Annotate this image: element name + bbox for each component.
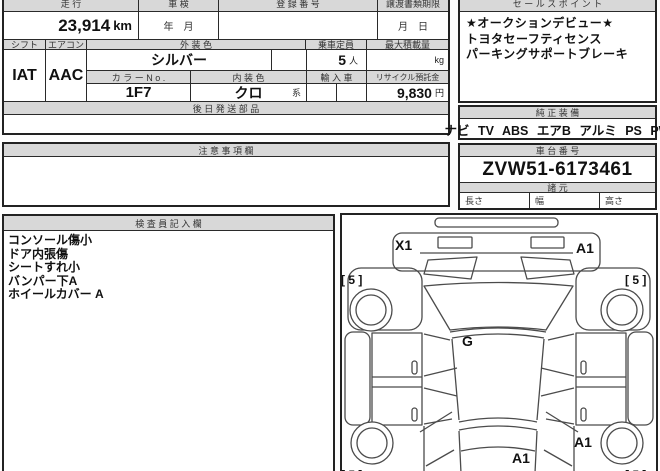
headlight-left <box>424 257 477 279</box>
car-diagram-box: X1 A1 [ 5 ] [ 5 ] G A1 A1 [ 5 ] [ 5 ] <box>340 213 658 471</box>
later-parts-header: 後 日 発 送 部 品 <box>4 102 448 115</box>
exterior-color-value: シルバー <box>87 50 272 71</box>
mileage-number: 23,914 <box>58 16 110 36</box>
rocker-panel-right <box>628 332 653 425</box>
caution-box: 注 意 事 項 欄 <box>2 142 450 207</box>
registration-value <box>219 12 378 40</box>
recycle-value: 9,830 円 <box>367 84 448 102</box>
damage-mark-front-bumper-left: X1 <box>395 237 412 253</box>
aircon-header: エアコン <box>46 40 87 50</box>
sales-point-line: ★オークションデビュー★ <box>466 16 649 32</box>
inspector-header: 検 査 員 記 入 欄 <box>4 216 333 231</box>
aircon-value: AAC <box>46 50 87 102</box>
max-load-unit: kg <box>434 55 444 65</box>
capacity-header: 乗車定員 <box>306 40 367 50</box>
sales-point-line: パーキングサポートブレーキ <box>466 47 649 63</box>
windshield <box>452 339 544 420</box>
chassis-header: 車 台 番 号 <box>460 145 655 157</box>
license-plate-area <box>438 237 472 248</box>
inspector-note: コンソール傷小 <box>8 234 329 248</box>
interior-color-suffix: 系 <box>292 86 301 99</box>
inspector-note: バンパー下A <box>8 275 329 289</box>
shift-header: シフト <box>4 40 46 50</box>
chassis-specs-box: 車 台 番 号 ZVW51-6173461 諸 元 長さ 幅 高さ <box>458 143 657 210</box>
length-label: 長さ <box>460 193 530 208</box>
chassis-value: ZVW51-6173461 <box>460 157 655 182</box>
import-header: 輸 入 車 <box>307 71 367 84</box>
inspector-box: 検 査 員 記 入 欄 コンソール傷小 ドア内張傷 シートすれ小 バンパー下A … <box>2 214 335 471</box>
vehicle-info-table: 走 行 車 検 登 録 番 号 譲渡書類期限 23,914 km 年 月 月 日… <box>2 0 450 135</box>
inspection-value: 年 月 <box>139 12 219 40</box>
damage-mark-windshield: G <box>462 333 473 349</box>
headlight-right <box>521 257 574 279</box>
shift-value: IAT <box>4 50 46 102</box>
inspector-note: ホイールカバー A <box>8 288 329 302</box>
mileage-unit: km <box>113 18 132 33</box>
caution-value <box>4 157 448 203</box>
front-bumper-strip <box>435 218 558 227</box>
interior-color-name: クロ <box>235 84 263 102</box>
later-parts-value <box>4 115 448 133</box>
max-load-value: kg <box>367 50 448 71</box>
recycle-number: 9,830 <box>397 85 432 101</box>
car-damage-diagram: X1 A1 [ 5 ] [ 5 ] G A1 A1 [ 5 ] [ 5 ] <box>342 215 656 471</box>
color-no-header: カ ラ ー N o . <box>87 71 191 84</box>
interior-color-value: クロ 系 <box>191 84 307 102</box>
door-handle-left-front <box>412 361 417 374</box>
capacity-unit: 人 <box>349 54 358 67</box>
tire-grade-front-right: [ 5 ] <box>625 273 646 287</box>
transfer-deadline-header: 譲渡書類期限 <box>378 0 448 12</box>
recycle-unit: 円 <box>435 86 444 99</box>
import-cell-2 <box>337 84 367 102</box>
mileage-header: 走 行 <box>4 0 139 12</box>
height-label: 高さ <box>600 193 655 208</box>
caution-header: 注 意 事 項 欄 <box>4 144 448 157</box>
exterior-color-extra-cell <box>272 50 307 71</box>
front-bumper <box>393 233 600 271</box>
mileage-value: 23,914 km <box>4 12 139 40</box>
damage-mark-rear-right: A1 <box>574 434 592 450</box>
sales-points-header: セ ー ル ス ポ イ ン ト <box>460 0 655 12</box>
doors-left <box>372 333 422 425</box>
max-load-header: 最大積載量 <box>367 40 448 50</box>
width-label: 幅 <box>530 193 600 208</box>
rocker-panel-left <box>345 332 370 425</box>
tire-grade-front-left: [ 5 ] <box>342 273 362 287</box>
damage-mark-rear-center: A1 <box>512 450 530 466</box>
front-sensor-area <box>531 237 564 248</box>
import-cell-1 <box>307 84 337 102</box>
sales-points-box: セ ー ル ス ポ イ ン ト ★オークションデビュー★ トヨタセーフティセンス… <box>458 0 657 103</box>
registration-header: 登 録 番 号 <box>219 0 378 12</box>
equipment-value: ナビ TV ABS エアB アルミ PS PW <box>460 119 655 140</box>
door-handle-right-front <box>581 361 586 374</box>
auction-sheet: 走 行 車 検 登 録 番 号 譲渡書類期限 23,914 km 年 月 月 日… <box>0 0 660 471</box>
equipment-box: 純 正 装 備 ナビ TV ABS エアB アルミ PS PW <box>458 105 657 140</box>
hood <box>424 283 573 331</box>
inspection-header: 車 検 <box>139 0 219 12</box>
color-no-value: 1F7 <box>87 84 191 102</box>
sales-points-list: ★オークションデビュー★ トヨタセーフティセンス パーキングサポートブレーキ <box>460 12 655 63</box>
capacity-number: 5 <box>338 52 346 68</box>
inspector-notes: コンソール傷小 ドア内張傷 シートすれ小 バンパー下A ホイールカバー A <box>4 231 333 305</box>
interior-color-header: 内 装 色 <box>191 71 307 84</box>
door-handle-right-rear <box>581 408 586 421</box>
door-handle-left-rear <box>412 408 417 421</box>
doors-right <box>576 333 626 425</box>
specs-header: 諸 元 <box>460 182 655 193</box>
transfer-deadline-value: 月 日 <box>378 12 448 40</box>
damage-mark-front-bumper-right: A1 <box>576 240 594 256</box>
equipment-header: 純 正 装 備 <box>460 107 655 119</box>
inspector-note: シートすれ小 <box>8 261 329 275</box>
recycle-header: リサイクル預託金 <box>367 71 448 84</box>
sales-point-line: トヨタセーフティセンス <box>466 32 649 48</box>
exterior-color-header: 外 装 色 <box>87 40 306 50</box>
inspector-note: ドア内張傷 <box>8 248 329 262</box>
capacity-value: 5 人 <box>307 50 367 71</box>
